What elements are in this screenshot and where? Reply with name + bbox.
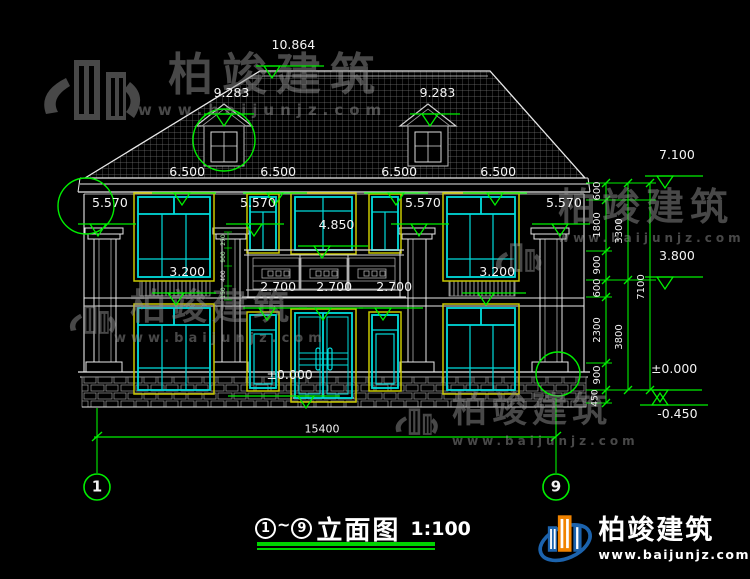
title-tilde: ~ — [277, 515, 290, 534]
brand-name: 柏竣建筑 — [598, 517, 750, 544]
title-axis-end: 9 — [291, 518, 312, 539]
brand-block: 柏竣建筑 www.baijunjz.com — [536, 502, 750, 576]
balcony-railing — [242, 250, 406, 297]
elevation-drawing — [0, 0, 750, 579]
sill-bands — [140, 281, 515, 296]
title-underline-thick — [257, 542, 435, 546]
wall-structure — [78, 194, 590, 407]
cad-elevation-sheet: 柏竣建筑 www.baijunjz.com 柏竣建筑 www.baijunjz.… — [0, 0, 750, 579]
title-underline-thin — [257, 548, 435, 550]
hip-roof — [78, 71, 590, 192]
axis-bubble-1 — [84, 474, 110, 500]
brand-url: www.baijunjz.com — [598, 549, 750, 562]
axis-bubble-9 — [543, 474, 569, 500]
title-scale: 1:100 — [410, 518, 470, 540]
title-axis-start: 1 — [255, 518, 276, 539]
brand-logo-icon — [536, 505, 594, 573]
